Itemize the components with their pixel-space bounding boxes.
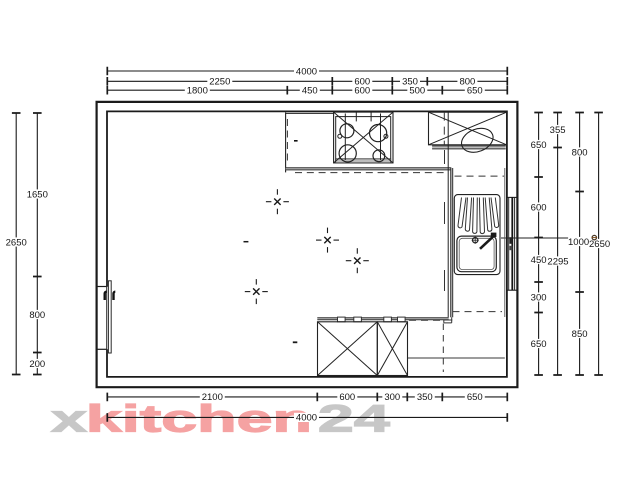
svg-text:355: 355 (550, 125, 566, 136)
svg-text:200: 200 (29, 359, 45, 370)
svg-text:kitchen: kitchen (86, 398, 312, 440)
svg-text:2250: 2250 (209, 77, 230, 88)
svg-text:350: 350 (417, 392, 433, 403)
svg-text:2650: 2650 (6, 237, 27, 248)
svg-text:450: 450 (531, 255, 547, 266)
svg-text:600: 600 (339, 392, 355, 403)
svg-text:300: 300 (531, 292, 547, 303)
svg-text:300: 300 (384, 392, 400, 403)
svg-text:1000: 1000 (568, 237, 589, 248)
svg-text:600: 600 (354, 86, 370, 97)
svg-text:650: 650 (467, 392, 483, 403)
svg-text:24: 24 (318, 398, 390, 440)
svg-text:850: 850 (572, 329, 588, 340)
svg-text:4000: 4000 (296, 66, 317, 77)
svg-text:2295: 2295 (547, 256, 568, 267)
svg-text:800: 800 (29, 310, 45, 321)
svg-text:800: 800 (572, 147, 588, 158)
svg-text:2100: 2100 (202, 392, 223, 403)
svg-text:650: 650 (531, 140, 547, 151)
svg-text:600: 600 (531, 202, 547, 213)
svg-text:650: 650 (467, 86, 483, 97)
svg-text:1650: 1650 (27, 189, 48, 200)
svg-text:1800: 1800 (187, 86, 208, 97)
svg-text:2650: 2650 (589, 239, 610, 250)
svg-text:500: 500 (409, 86, 425, 97)
svg-text:x: x (51, 398, 88, 440)
svg-text:650: 650 (531, 339, 547, 350)
svg-text:4000: 4000 (296, 413, 317, 424)
svg-text:450: 450 (302, 86, 318, 97)
